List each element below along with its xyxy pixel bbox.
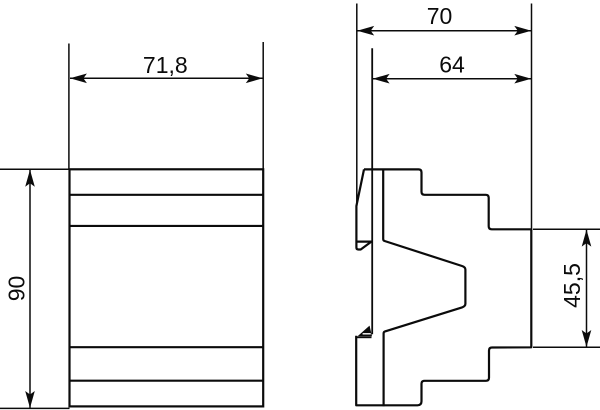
svg-text:70: 70 bbox=[427, 3, 453, 29]
svg-text:90: 90 bbox=[3, 276, 29, 302]
svg-text:45,5: 45,5 bbox=[559, 263, 585, 308]
svg-text:64: 64 bbox=[439, 52, 465, 78]
svg-text:71,8: 71,8 bbox=[143, 52, 188, 78]
